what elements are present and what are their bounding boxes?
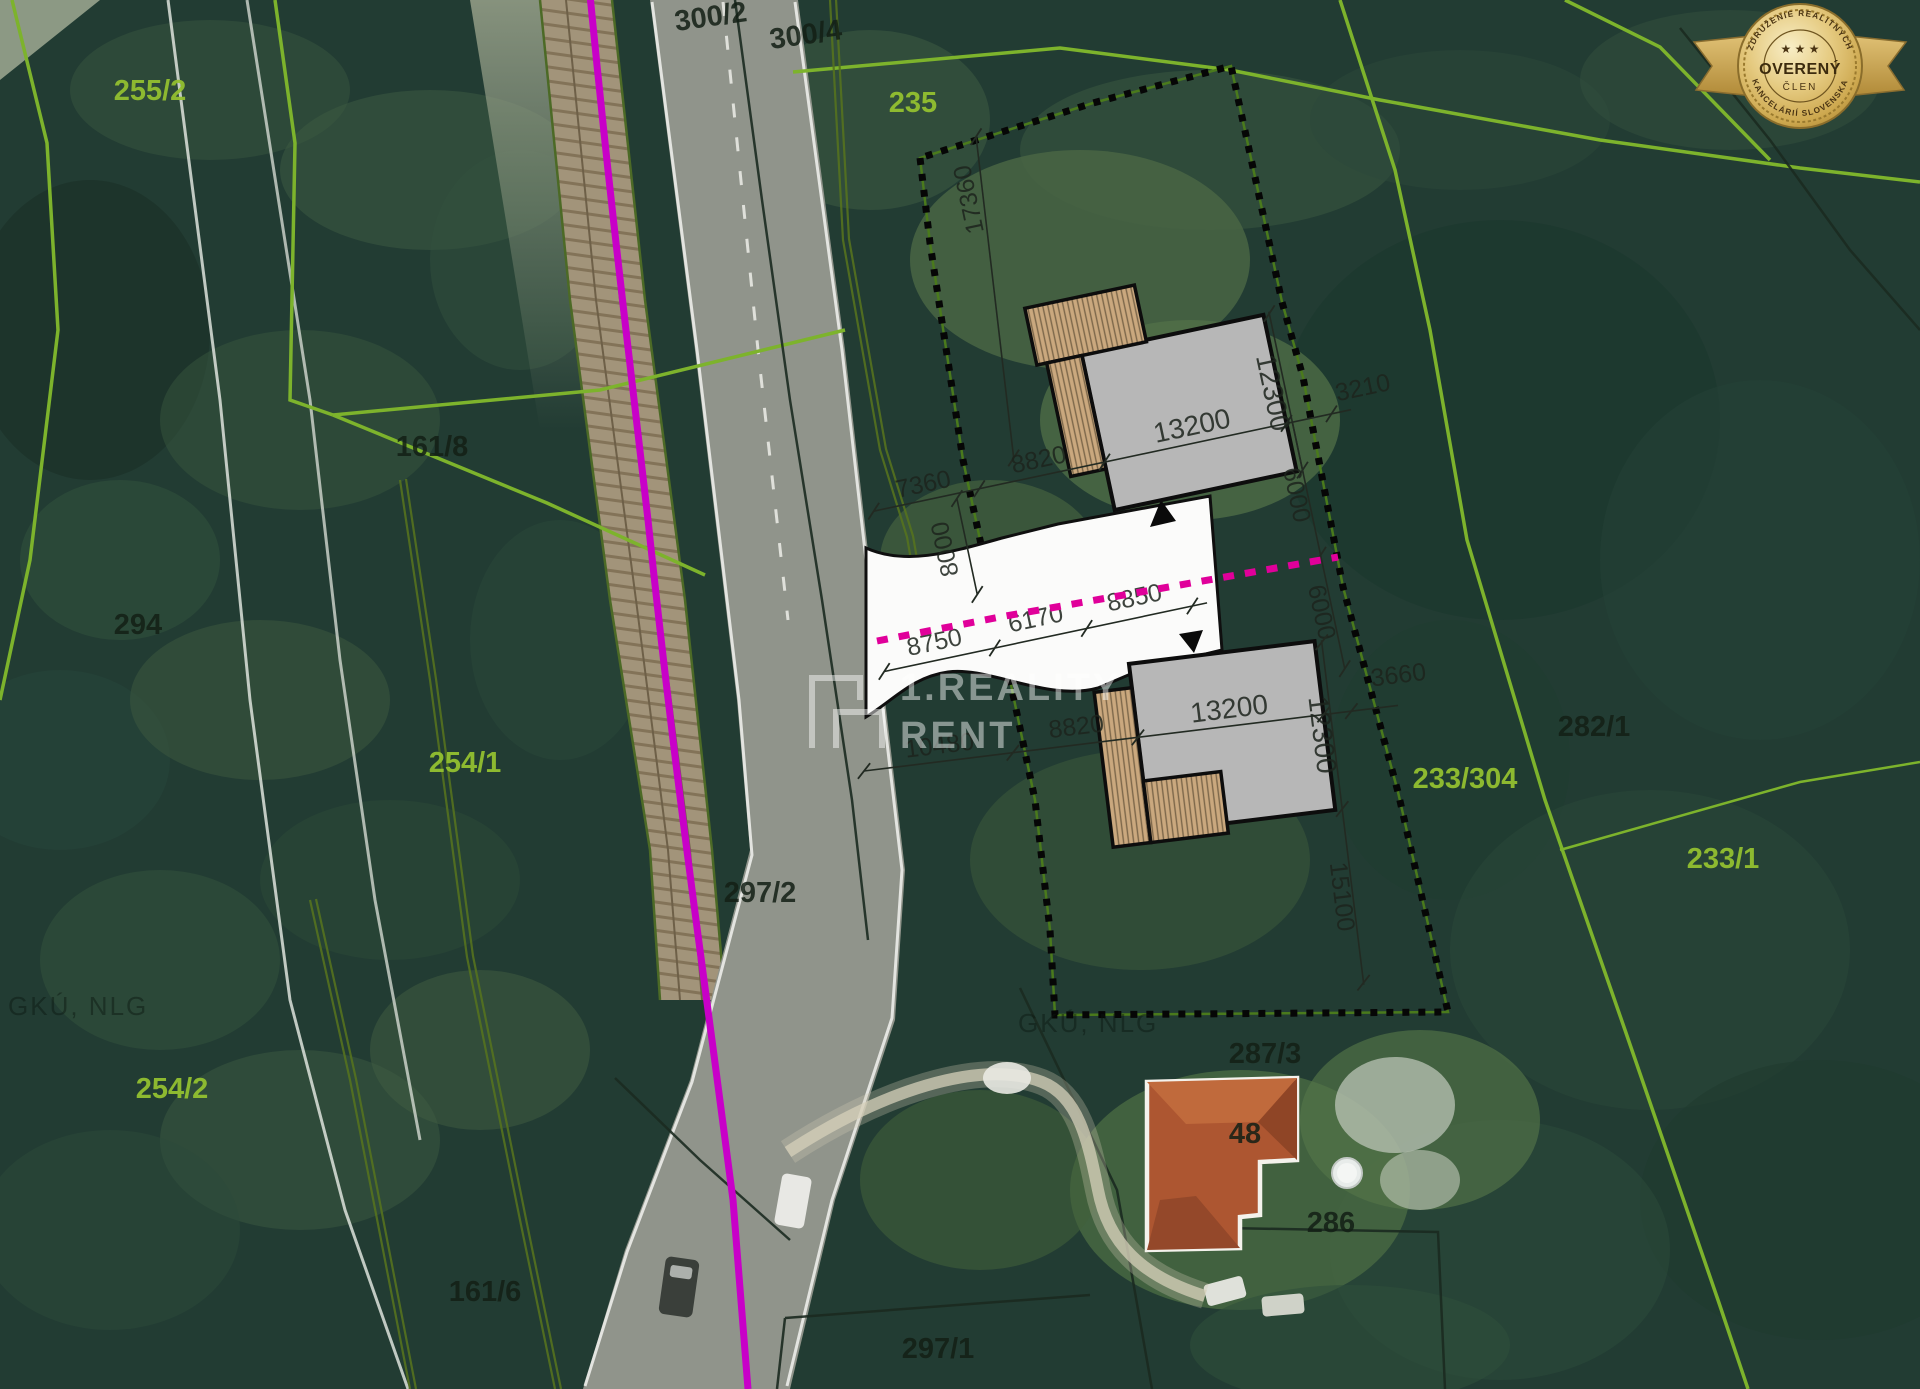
parcel-233-1: 233/1	[1687, 843, 1760, 875]
agency-name-line1: 1.REALITY	[900, 667, 1121, 709]
map-source-watermark-center: GKÚ, NLG	[1018, 1008, 1158, 1038]
parcel-48: 48	[1229, 1118, 1261, 1150]
parcel-254-2: 254/2	[136, 1073, 209, 1105]
parcel-286: 286	[1307, 1207, 1355, 1239]
badge-title: OVERENÝ	[1759, 59, 1841, 78]
parcel-254-1: 254/1	[429, 747, 502, 779]
parcel-255-2: 255/2	[114, 75, 187, 107]
parcel-233-304: 233/304	[1413, 763, 1518, 795]
agency-name-line2: RENT	[900, 715, 1015, 757]
parcel-282-1: 282/1	[1558, 711, 1631, 743]
map-source-watermark-left: GKÚ, NLG	[8, 991, 148, 1021]
badge-stars: ★ ★ ★	[1781, 42, 1820, 56]
parcel-161-8: 161/8	[396, 431, 469, 463]
parcel-235: 235	[889, 87, 937, 119]
site-plan-map: 7360 8820 13200 3210 12300 17360 8000 60…	[0, 0, 1920, 1389]
parcel-297-1: 297/1	[902, 1333, 975, 1365]
parcel-161-6: 161/6	[449, 1276, 522, 1308]
parcel-287-3: 287/3	[1229, 1038, 1302, 1070]
badge-subtitle: ČLEN	[1783, 80, 1818, 93]
parcel-294: 294	[114, 609, 162, 641]
parcel-297-2: 297/2	[724, 877, 797, 909]
lower-terrace-leg	[1143, 772, 1228, 843]
